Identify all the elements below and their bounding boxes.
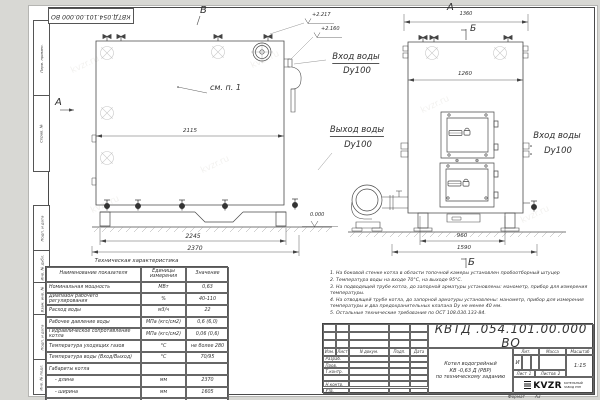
row-unit: МПа (кгс/см2): [141, 328, 186, 340]
row-value: 40-110: [186, 293, 229, 305]
product-name: Котел водогрейный КВ -0,63 Д (РВР) по те…: [428, 348, 513, 394]
row-value: [186, 363, 229, 375]
dim-text-2245: 2245: [185, 233, 200, 240]
note-5: 5. Остальные технические требования по О…: [330, 311, 592, 317]
col-header-name: Наименование показателя: [46, 267, 141, 282]
water-inlet-label-1: Вход воды: [332, 52, 379, 64]
row-unit: МВт: [141, 282, 186, 294]
dim-2115: [96, 134, 284, 137]
draft-fan: [352, 185, 383, 231]
row-name: Расход воды: [46, 305, 141, 317]
outlet-pipe: [284, 59, 301, 112]
row-value: 0,6 (6,0): [186, 317, 229, 329]
water-outlet-label: Выход воды: [330, 125, 384, 137]
sheet-value: 1: [529, 371, 532, 376]
row-unit: мм: [141, 387, 186, 399]
row-unit: %: [141, 293, 186, 305]
skid-frame: [100, 212, 286, 226]
note-1: 1. На боковой стенке котла в области топ…: [330, 271, 592, 277]
lit-value: И: [513, 355, 522, 370]
product-name-line3: по техническому заданию: [436, 374, 506, 381]
sheets-label: Листов: [541, 371, 556, 376]
front-view: [60, 16, 342, 256]
boiler-body-front: [96, 41, 284, 205]
row-name: - ширина: [46, 387, 141, 399]
water-inlet-dn-2: Dy100: [544, 146, 572, 156]
row-value: 2370: [186, 375, 229, 387]
note-2: 2. Температура воды на входе 70°С, на вы…: [330, 278, 592, 284]
boiler-body-side: [408, 42, 523, 213]
fan-duct: [382, 191, 408, 210]
format-label: Формат: [508, 394, 525, 399]
row-unit: МПа (кгс/см2): [141, 317, 186, 329]
unit-header-line2: измерения: [150, 274, 177, 279]
logo-subtitle-line2: ЗАВОД РЭП: [564, 386, 583, 389]
section-label-b-top: Б: [470, 24, 476, 34]
side-view: [348, 14, 566, 268]
row-name: Габариты котла: [46, 363, 141, 375]
row-name: - длина: [46, 375, 141, 387]
row-value: 70/95: [186, 352, 229, 364]
row-value: 1605: [186, 387, 229, 399]
title-block-doc-number: КВТД .054.101.00.000 ВО: [428, 324, 594, 348]
water-inlet-label-2: Вход воды: [533, 131, 580, 141]
rev-header-list: Лист: [336, 348, 349, 356]
format-strip: Формат А3: [508, 394, 541, 399]
logo-text: KVZR: [533, 381, 562, 391]
company-logo: KVZR КОТЕЛЬНЫЙ ЗАВОД РЭП: [513, 377, 594, 394]
technical-notes: 1. На боковой стенке котла в области топ…: [330, 271, 592, 317]
row-unit: [141, 363, 186, 375]
section-label-b-bottom: Б: [468, 257, 475, 268]
drawing-sheet: kvzr.ru kvzr.ru kvzr.ru kvzr.ru kvzr.ru …: [0, 0, 600, 400]
dim-text-1360: 1360: [460, 11, 473, 17]
note-3: 3. На подводящей трубе котла, до запорно…: [330, 285, 592, 297]
sheet-cell: Лист 1: [513, 370, 535, 377]
col-header-unit: Единицыизмерения: [141, 267, 186, 282]
row-value: 0,63: [186, 282, 229, 294]
view-label-a-front: А: [55, 97, 62, 108]
sheets-cell: Листов 2: [535, 370, 566, 377]
row-name: Температура уходящих газов: [46, 340, 141, 352]
water-inlet-dn-1: Dy100: [343, 66, 371, 76]
tech-characteristics: Техническая характеристика Наименование …: [45, 258, 228, 400]
rev-header-data: Дата: [410, 348, 428, 356]
row-name: Номинальная мощность: [46, 282, 141, 294]
scale-header: Масштаб: [566, 348, 594, 355]
sheets-value: 2: [558, 371, 561, 376]
row-value: 22: [186, 305, 229, 317]
title-block: Изм. Лист N докум. Подп. Дата Разраб. Пр…: [322, 323, 593, 393]
dim-text-1260: 1260: [458, 71, 472, 77]
view-label-v: В: [200, 5, 207, 16]
dim-text-2115: 2115: [183, 128, 197, 134]
rev-header-podp: Подп.: [389, 348, 410, 356]
logo-subtitle: КОТЕЛЬНЫЙ ЗАВОД РЭП: [564, 382, 583, 389]
rev-header-ndoc: N докум.: [349, 348, 389, 356]
row-unit: м3/ч: [141, 305, 186, 317]
dim-1260: [408, 78, 523, 81]
row-unit: °С: [141, 340, 186, 352]
row-name: Диапазон рабочего регулирования: [46, 293, 141, 305]
row-unit: мм: [141, 375, 186, 387]
scale-value: 1:15: [566, 355, 594, 377]
water-outlet-dn: Dy100: [344, 140, 372, 150]
mass-value: [539, 355, 566, 370]
row-value: 0,06 (0,6): [186, 328, 229, 340]
dim-text-1590: 1590: [457, 245, 471, 251]
view-label-a-side: А: [447, 2, 454, 13]
row-value: не более 280: [186, 340, 229, 352]
callout-see-item-1: см. п. 1: [210, 83, 241, 92]
elevation-zero: 0.000: [310, 212, 324, 218]
dim-960: [420, 216, 505, 245]
flange-connection: [251, 41, 273, 63]
tech-table-title: Техническая характеристика: [45, 258, 228, 264]
dim-text-960: 960: [457, 233, 468, 239]
format-value: А3: [535, 394, 541, 399]
elevation-2217: +2.217: [312, 12, 331, 18]
sheet-label: Лист: [517, 371, 527, 376]
tech-table: Наименование показателя Единицыизмерения…: [45, 266, 228, 400]
boiler-door-lower: [440, 159, 498, 207]
logo-grill-icon: [524, 381, 531, 390]
row-name: Температура воды (Вход/Выход): [46, 352, 141, 364]
sign-utv: Утв.: [323, 388, 349, 395]
boiler-door-upper: [441, 112, 498, 158]
product-name-line2: КВ -0,63 Д (РВР): [450, 368, 492, 375]
row-unit: °С: [141, 352, 186, 364]
row-name: Рабочее давление воды: [46, 317, 141, 329]
note-4: 4. На отводящей трубе котла, до запорной…: [330, 298, 592, 310]
mass-header: Масса: [539, 348, 566, 355]
elevation-2160: +2.160: [321, 26, 340, 32]
dim-text-2370: 2370: [187, 245, 202, 252]
lit-header: Лит.: [513, 348, 539, 355]
row-name: Гидравлическое сопротивление котла: [46, 328, 141, 340]
col-header-value: Значение: [186, 267, 229, 282]
product-name-line1: Котел водогрейный: [444, 361, 497, 368]
rev-header-izm: Изм.: [323, 348, 336, 356]
